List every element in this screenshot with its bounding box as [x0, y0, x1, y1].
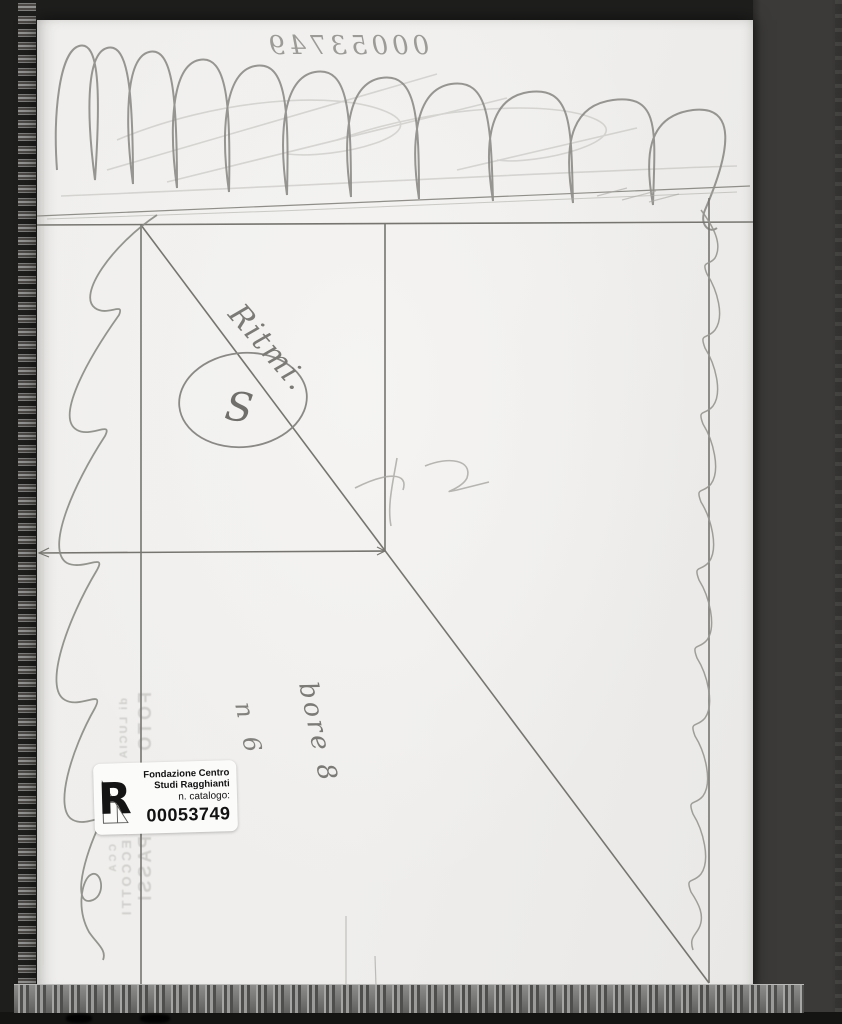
pencil-drawing: 00053749 S Ritmi. bore 8 — [37, 20, 753, 990]
left-margin-squiggle — [56, 215, 157, 960]
dark-smudge — [66, 1014, 92, 1023]
frame-top-line-faint — [47, 192, 737, 219]
main-diagonal-line — [141, 225, 709, 983]
sleeve-edge-ticks — [835, 0, 842, 1012]
logo-letter: R — [98, 774, 132, 825]
crossed-out-mark — [355, 458, 489, 526]
catalog-number: 00053749 — [131, 803, 231, 827]
ragghianti-logo: R — [98, 769, 132, 828]
sleeve-edge-bottom — [14, 984, 804, 1013]
note-bore-8: bore 8 — [292, 679, 343, 786]
frame-lines — [37, 186, 753, 986]
frame-top-line-upper — [37, 186, 750, 216]
light-scribble — [61, 74, 737, 196]
circled-annotation-letter: S — [222, 383, 256, 432]
short-vertical-marks — [346, 916, 376, 986]
sleeve-right-panel — [753, 0, 842, 1012]
top-scribble — [56, 46, 725, 230]
dark-smudge — [140, 1014, 170, 1023]
inner-divider-horizontal — [39, 551, 385, 553]
photo-paper: FOTO di LUCIA PASSI ECCOTTI CCA 00053749 — [37, 20, 753, 990]
sleeve-bottom-shadow — [0, 1012, 842, 1024]
archival-photo-scan: { "photo": { "handwritten_number_mirrore… — [0, 0, 842, 1024]
catalog-label: R Fondazione Centro Studi Ragghianti n. … — [93, 760, 238, 835]
right-margin-squiggle — [689, 210, 720, 950]
handwritten-number-mirrored: 00053749 — [265, 31, 429, 61]
binder-rings-left — [18, 0, 36, 1010]
note-n-6: n 6 — [229, 699, 268, 760]
